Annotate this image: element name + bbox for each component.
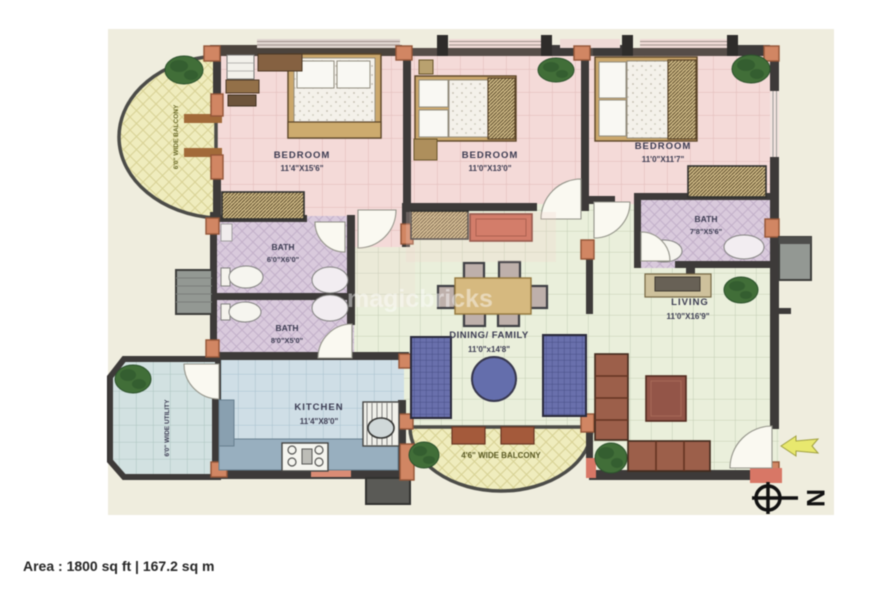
svg-text:6'0" WIDE BALCONY: 6'0" WIDE BALCONY: [173, 104, 180, 169]
svg-text:11'0"X11'7": 11'0"X11'7": [642, 155, 685, 164]
svg-text:LIVING: LIVING: [671, 297, 709, 308]
svg-text:4'6" WIDE BALCONY: 4'6" WIDE BALCONY: [461, 451, 541, 460]
svg-text:6'0"X6'0": 6'0"X6'0": [267, 255, 300, 264]
svg-text:7'8"X5'6": 7'8"X5'6": [690, 227, 723, 236]
svg-text:11'0"x14'8": 11'0"x14'8": [468, 345, 510, 354]
svg-text:6'0" WIDE UTILITY: 6'0" WIDE UTILITY: [164, 399, 171, 457]
svg-text:BEDROOM: BEDROOM: [635, 141, 692, 152]
svg-text:11'0"X13'0": 11'0"X13'0": [469, 164, 512, 173]
svg-text:BEDROOM: BEDROOM: [274, 150, 331, 161]
svg-text:BATH: BATH: [276, 323, 299, 333]
svg-text:DINING/ FAMILY: DINING/ FAMILY: [449, 330, 529, 341]
svg-text:11'4"X15'6": 11'4"X15'6": [281, 164, 324, 173]
svg-text:11'4"X8'0": 11'4"X8'0": [300, 417, 339, 426]
svg-text:N: N: [801, 489, 829, 507]
svg-text:magicbricks: magicbricks: [347, 285, 493, 313]
svg-text:8'0"X5'0": 8'0"X5'0": [271, 336, 304, 345]
svg-text:Area : 1800 sq ft | 167.2 sq m: Area : 1800 sq ft | 167.2 sq m: [23, 558, 214, 574]
svg-text:BATH: BATH: [695, 214, 718, 224]
svg-text:11'0"X16'9": 11'0"X16'9": [667, 312, 710, 321]
svg-text:KITCHEN: KITCHEN: [294, 402, 343, 413]
svg-text:BEDROOM: BEDROOM: [462, 150, 519, 161]
svg-text:BATH: BATH: [272, 242, 295, 252]
